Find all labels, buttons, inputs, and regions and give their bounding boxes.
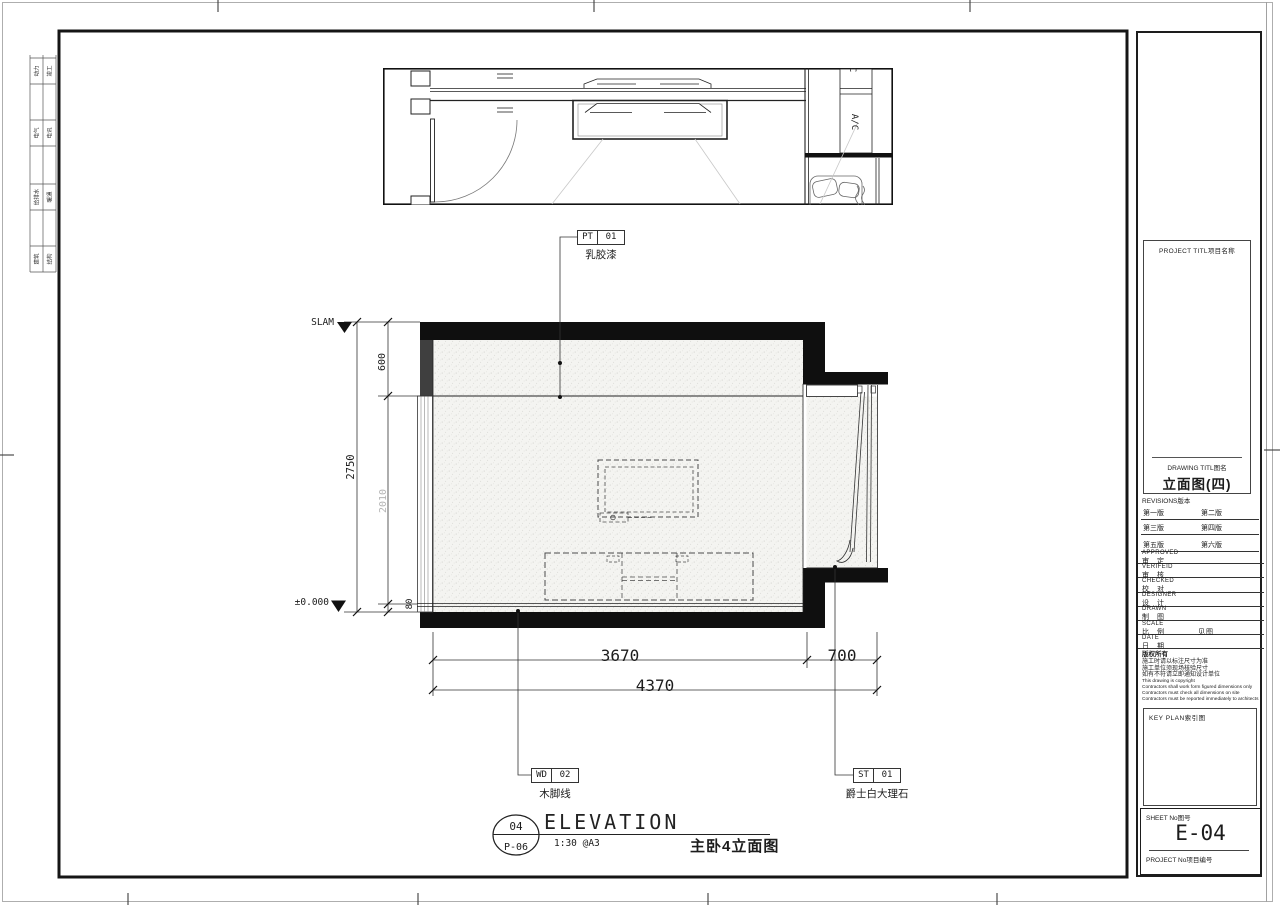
view-title-cn-name: 主卧4立面图 (690, 835, 779, 856)
title-block: PROJECT TITL项目名称 DRAWING TITL图名 立面图(四) R… (1136, 31, 1262, 877)
tag-pt01-desc: 乳胶漆 (577, 247, 625, 262)
copyright-line: 版权所有 (1142, 652, 1260, 659)
drawing-sheet: 动力 竣工 电气 电讯 给排水 暖通 建筑 结构 (0, 0, 1280, 905)
revision-entry: 第三版 (1143, 523, 1164, 533)
project-title-box: PROJECT TITL项目名称 DRAWING TITL图名 立面图(四) (1143, 240, 1251, 494)
view-title-name: ELEVATION (544, 810, 679, 834)
tag-number: 01 (597, 231, 624, 244)
tag-wd02-desc: 木脚线 (531, 786, 579, 801)
project-title-label: PROJECT TITL项目名称 (1144, 245, 1250, 255)
sheet-number: E-04 (1141, 821, 1260, 845)
field-row-scale: SCALE 比 例 见图 (1138, 620, 1264, 635)
copyright-line-en: Contractors shall work form figured dime… (1142, 685, 1260, 691)
tag-code: ST (854, 769, 873, 782)
tag-number: 01 (873, 769, 900, 782)
dim-h-total: 4370 (625, 676, 685, 695)
dim-h-right: 700 (822, 646, 862, 665)
revision-row: 第一版 第二版 (1141, 507, 1259, 520)
tag-wd02: WD 02 (531, 768, 579, 783)
dim-h-left: 3670 (590, 646, 650, 665)
revision-row: 第三版 第四版 (1141, 522, 1259, 535)
field-row-drawn: DRAWN 制 图 (1138, 606, 1264, 621)
tag-st01-desc: 爵士白大理石 (820, 786, 934, 801)
field-row-checked: CHECKED 校 对 (1138, 577, 1264, 592)
field-cn: 日 期 (1142, 641, 1167, 651)
tag-number: 02 (551, 769, 578, 782)
key-plan-label: KEY PLAN索引图 (1149, 712, 1206, 722)
text-overlay: SLAM ±0.000 3670 700 4370 PT 01 乳胶漆 WD 0… (0, 0, 1280, 905)
field-row-date: DATE 日 期 (1138, 634, 1264, 649)
key-plan-box: KEY PLAN索引图 (1143, 708, 1257, 806)
copyright-line-en: Contractors must be reported immediately… (1142, 697, 1260, 703)
copyright-line: 施工时请以标注尺寸为准 (1142, 659, 1260, 666)
copyright-note: 版权所有 施工时请以标注尺寸为准 施工单位须现场核验尺寸 如有不符请立即通知设计… (1142, 652, 1260, 702)
tag-pt01: PT 01 (577, 230, 625, 245)
view-title-scale: 1:30 @A3 (554, 838, 600, 849)
level-label-bottom: ±0.000 (291, 597, 329, 608)
revision-entry: 第一版 (1143, 508, 1164, 518)
revision-entry: 第四版 (1201, 523, 1222, 533)
field-row-verified: VERIFEID 审 核 (1138, 563, 1264, 578)
tag-st01: ST 01 (853, 768, 901, 783)
field-row-designer: DESIGNER 设 计 (1138, 592, 1264, 607)
tag-code: PT (578, 231, 597, 244)
divider (1149, 850, 1249, 851)
revision-entry: 第二版 (1201, 508, 1222, 518)
project-no-label: PROJECT No项目编号 (1146, 854, 1212, 864)
tag-code: WD (532, 769, 551, 782)
revisions-label: REVISIONS版本 (1142, 495, 1190, 505)
level-label-top: SLAM (298, 317, 334, 328)
sheet-number-box: SHEET No图号 E-04 PROJECT No项目编号 (1140, 808, 1261, 875)
drawing-title-label: DRAWING TITL图名 (1144, 462, 1250, 472)
field-row-approved: APPROVED 审 定 (1138, 549, 1264, 564)
drawing-name: 立面图(四) (1144, 473, 1250, 493)
divider (1152, 457, 1242, 458)
